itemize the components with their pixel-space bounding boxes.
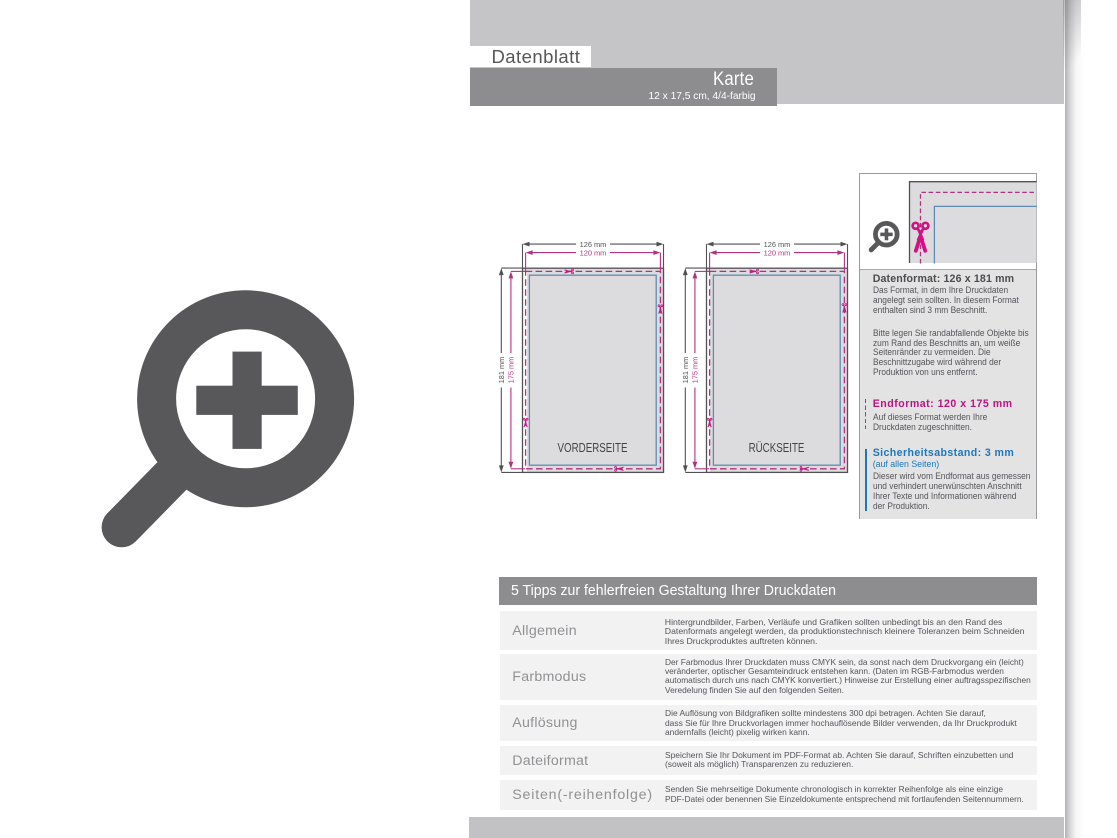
- svg-text:175 mm: 175 mm: [691, 357, 700, 384]
- svg-text:175 mm: 175 mm: [507, 357, 516, 384]
- svg-text:181 mm: 181 mm: [681, 357, 690, 384]
- svg-text:181 mm: 181 mm: [497, 357, 506, 384]
- svg-text:120 mm: 120 mm: [764, 248, 791, 257]
- svg-text:120 mm: 120 mm: [580, 248, 607, 257]
